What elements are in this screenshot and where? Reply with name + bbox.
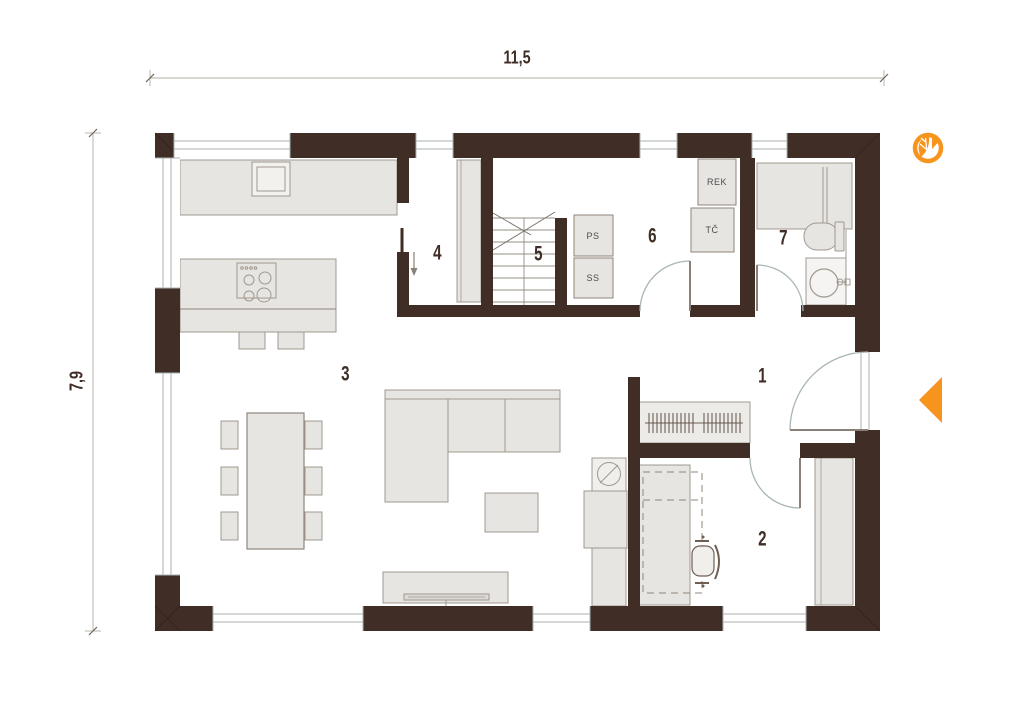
utility-column [584, 458, 627, 606]
bathroom-door [757, 265, 803, 311]
room-label-7: 7 [779, 227, 787, 251]
room-label-3: 3 [341, 363, 349, 387]
equipment-label-ps: PS [586, 231, 599, 241]
entrance-door-frame [855, 352, 880, 430]
equipment-label-rek: REK [707, 177, 727, 187]
technical-room-door [640, 261, 690, 311]
room-label-4: 4 [433, 242, 441, 266]
room-label-5: 5 [534, 243, 542, 267]
kitchen [180, 160, 397, 349]
bedroom-door [750, 458, 800, 508]
bedroom [639, 458, 853, 605]
bed [639, 465, 690, 605]
bathroom-counter [757, 163, 852, 229]
hallway-wardrobe [638, 402, 750, 443]
living-room [383, 390, 560, 608]
stairs [493, 212, 555, 305]
desk-chair [692, 536, 719, 588]
washbasin [806, 258, 850, 305]
kitchen-island [180, 259, 336, 332]
dimension-height-label: 7,9 [67, 371, 88, 391]
room-label-2: 2 [758, 528, 766, 552]
equipment-label-ss: SS [586, 273, 599, 283]
dimension-width-label: 11,5 [503, 48, 530, 69]
utility-counter [584, 491, 627, 548]
utility-counter [592, 548, 626, 606]
bar-stool [278, 332, 304, 349]
bar-stool [239, 332, 265, 349]
brand-logo-icon [915, 135, 941, 161]
coffee-table [485, 493, 538, 532]
dining-set [221, 413, 322, 549]
sofa [385, 390, 560, 502]
dining-table [247, 413, 304, 549]
bathroom [757, 163, 852, 305]
floor-plan-drawing [0, 0, 1024, 724]
room-label-6: 6 [648, 225, 656, 249]
toilet [804, 222, 844, 251]
floor-plan-canvas: 11,5 7,9 1 2 3 4 5 6 7 REK TČ PS SS [0, 0, 1024, 724]
entrance-arrow-icon [919, 377, 942, 423]
room-label-1: 1 [758, 365, 766, 389]
equipment-label-tc: TČ [706, 225, 719, 235]
